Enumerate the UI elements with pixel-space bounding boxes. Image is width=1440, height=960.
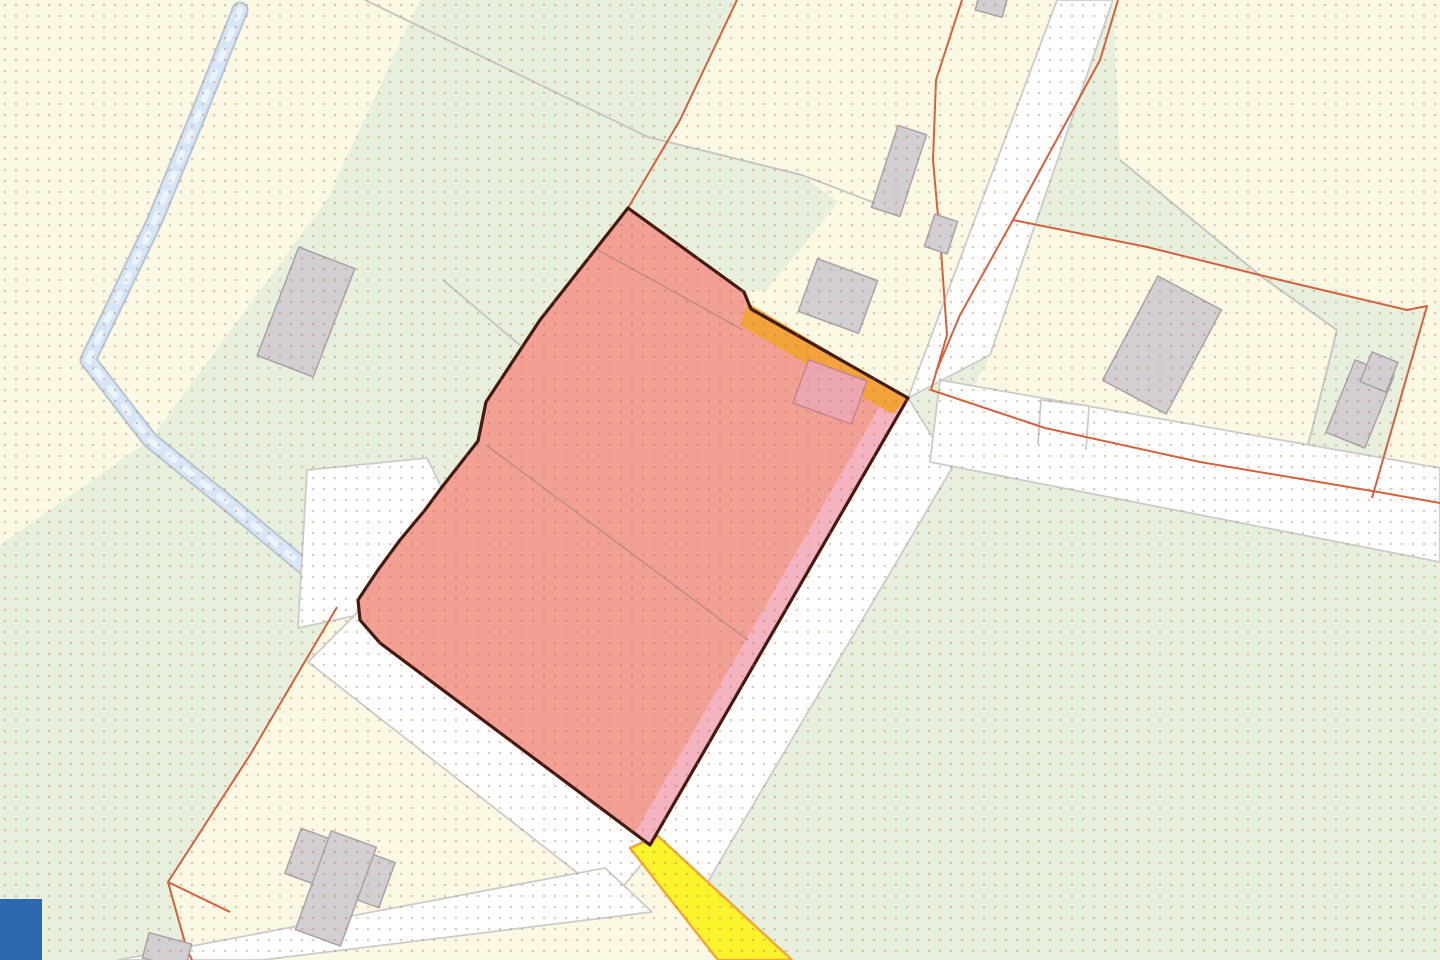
feature-layer xyxy=(0,0,1440,960)
map-svg[interactable] xyxy=(0,0,1440,960)
map-canvas[interactable] xyxy=(0,0,1440,960)
dot-texture-overlay xyxy=(0,0,1440,960)
blue-overlay-rectangle xyxy=(0,899,42,960)
